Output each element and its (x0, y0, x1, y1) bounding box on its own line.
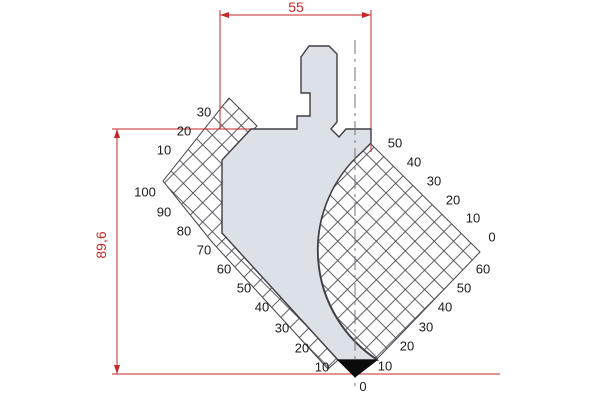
ruler-label-left_flank-10: 10 (315, 360, 329, 375)
ruler-label-right_bottom-10: 10 (378, 359, 392, 374)
ruler-label-right_bottom-30: 30 (419, 320, 433, 335)
ruler-label-right_top-50: 50 (388, 136, 402, 151)
ruler-label-right_top-10: 10 (466, 211, 480, 226)
ruler-label-right_bottom-20: 20 (400, 339, 414, 354)
origin-label: 0 (359, 379, 366, 394)
ruler-label-left_flank-70: 70 (197, 243, 211, 258)
ruler-label-left_flank-20: 20 (295, 341, 309, 356)
ruler-label-left_flank-90: 90 (157, 205, 171, 220)
ruler-label-left_top-20: 20 (177, 124, 191, 139)
ruler-label-right_bottom-60: 60 (476, 262, 490, 277)
ruler-label-left_flank-30: 30 (275, 321, 289, 336)
ruler-label-right_top-20: 20 (446, 193, 460, 208)
ruler-label-right_bottom-50: 50 (457, 281, 471, 296)
height-dimension-label: 89,6 (93, 231, 109, 258)
ruler-label-left_flank-80: 80 (177, 224, 191, 239)
drawing-canvas: 55 89,6 30201010090807060504030201050403… (0, 0, 600, 400)
ruler-label-left_top-10: 10 (157, 143, 171, 158)
ruler-label-left_flank-100: 100 (134, 185, 156, 200)
ruler-label-left_top-30: 30 (197, 105, 211, 120)
technical-drawing: 55 89,6 30201010090807060504030201050403… (0, 0, 600, 400)
ruler-label-left_flank-50: 50 (237, 281, 251, 296)
width-dimension-label: 55 (288, 0, 304, 15)
ruler-label-right_bottom-40: 40 (438, 300, 452, 315)
ruler-label-right_top-30: 30 (427, 174, 441, 189)
ruler-label-right_top-0: 0 (488, 230, 495, 245)
ruler-label-left_flank-60: 60 (217, 262, 231, 277)
ruler-label-right_top-40: 40 (407, 155, 421, 170)
ruler-label-left_flank-40: 40 (255, 300, 269, 315)
